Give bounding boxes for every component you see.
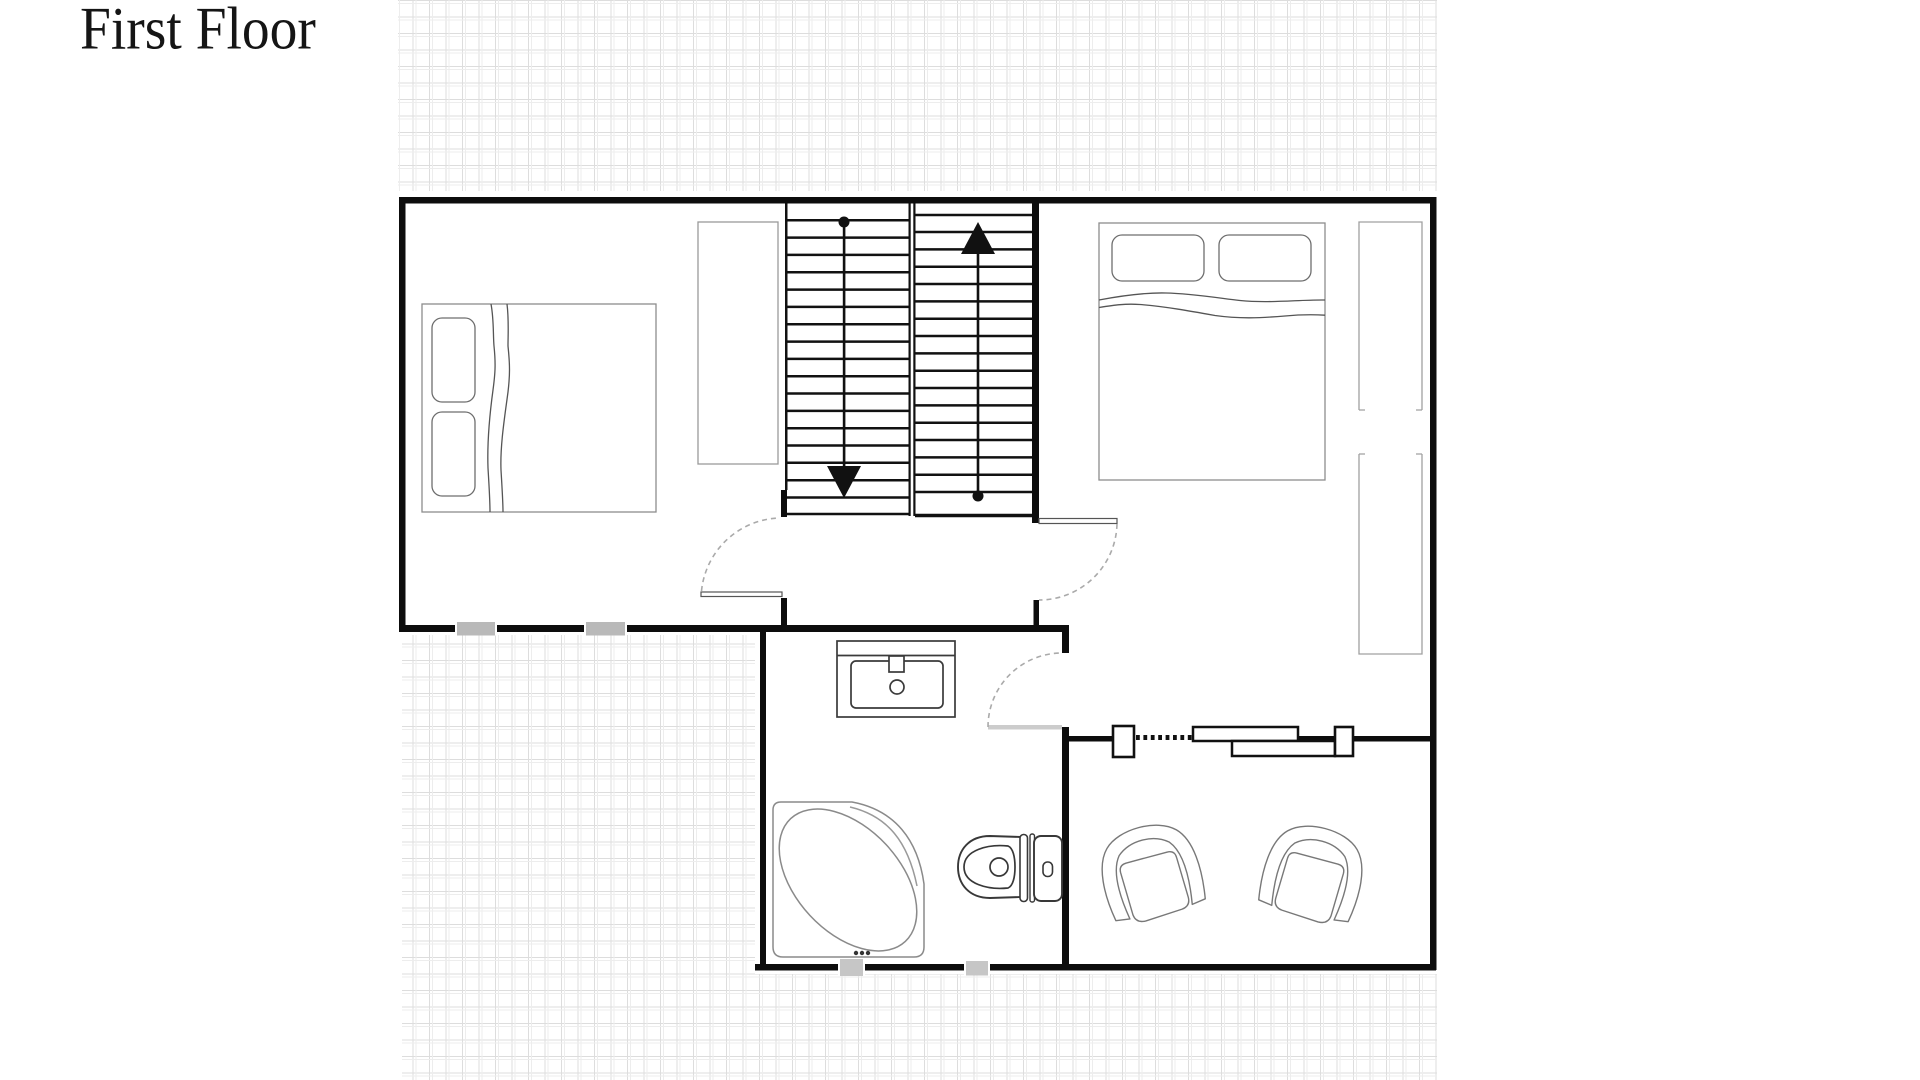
svg-text:First Floor: First Floor (80, 0, 316, 62)
